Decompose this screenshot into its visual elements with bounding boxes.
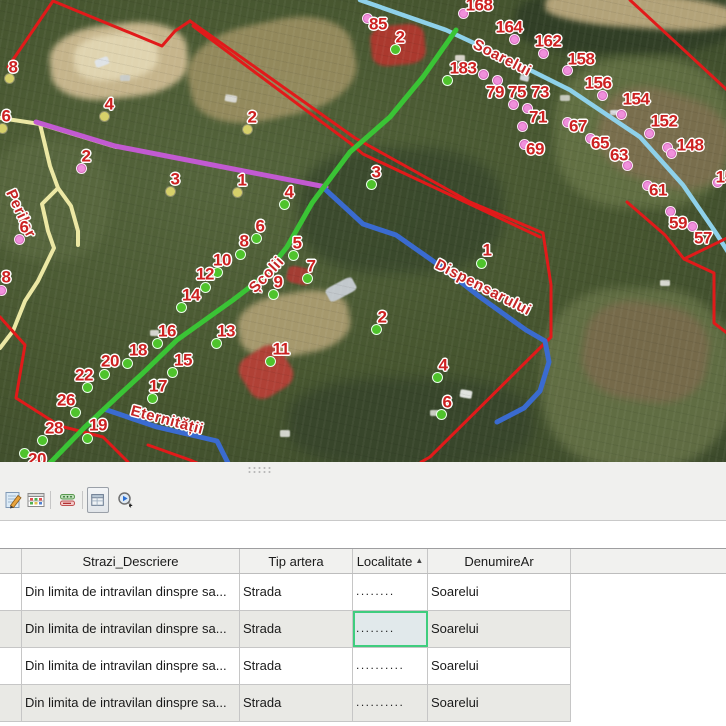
cell-denumire-artera[interactable]: Soarelui bbox=[428, 685, 571, 721]
cell-localitate[interactable]: ........ bbox=[353, 574, 428, 610]
header-localitate-label: Localitate bbox=[357, 554, 413, 569]
map-number-label: 2 bbox=[82, 148, 91, 165]
map-number-label: 1 bbox=[483, 242, 492, 259]
map-number-label: 22 bbox=[75, 367, 93, 384]
cell-tip-artera[interactable]: Strada bbox=[240, 685, 353, 721]
map-number-label: 57 bbox=[694, 230, 712, 247]
map-point-marker[interactable] bbox=[236, 250, 245, 259]
map-number-label: 6 bbox=[443, 394, 452, 411]
row-selector[interactable] bbox=[0, 685, 22, 721]
map-number-label: 3 bbox=[171, 171, 180, 188]
boundary-9[interactable] bbox=[0, 317, 128, 462]
map-number-label: 168 bbox=[466, 0, 493, 14]
map-number-label: 14 bbox=[182, 287, 200, 304]
map-number-label: 73 bbox=[531, 84, 549, 101]
map-number-label: 4 bbox=[285, 184, 294, 201]
map-number-label: 8 bbox=[2, 269, 11, 286]
map-number-label: 5 bbox=[293, 235, 302, 252]
table-row-selected[interactable]: Din limita de intravilan dinspre sa... S… bbox=[0, 611, 571, 648]
table-panel-header bbox=[0, 462, 726, 521]
row-selector[interactable] bbox=[0, 648, 22, 684]
map-number-label: 71 bbox=[529, 109, 547, 126]
map-number-label: 1 bbox=[238, 172, 247, 189]
cell-localitate-selected[interactable]: ........ bbox=[353, 611, 428, 647]
table-window-icon bbox=[90, 492, 106, 508]
map-number-label: 17 bbox=[149, 378, 167, 395]
map-viewport[interactable]: PerilorSoareluiȘcoliiDispensaruluiEterni… bbox=[0, 0, 726, 462]
map-number-label: 67 bbox=[569, 118, 587, 135]
map-number-label: 16 bbox=[158, 323, 176, 340]
map-point-marker[interactable] bbox=[518, 122, 527, 131]
map-point-marker[interactable] bbox=[201, 283, 210, 292]
cell-tip-artera[interactable]: Strada bbox=[240, 648, 353, 684]
edit-pencil-icon bbox=[5, 491, 23, 509]
map-number-label: 18 bbox=[129, 342, 147, 359]
map-number-label: 8 bbox=[9, 59, 18, 76]
route-lines-layer bbox=[0, 0, 726, 462]
attribute-table: Strazi_Descriere Tip artera Localitate ▲… bbox=[0, 548, 726, 722]
table-row[interactable]: Din limita de intravilan dinspre sa... S… bbox=[0, 685, 571, 722]
map-number-label: 183 bbox=[450, 60, 477, 77]
header-localitate[interactable]: Localitate ▲ bbox=[353, 549, 428, 573]
map-point-marker[interactable] bbox=[617, 110, 626, 119]
map-number-label: 4 bbox=[439, 357, 448, 374]
boundary-2[interactable] bbox=[53, 1, 190, 46]
map-point-marker[interactable] bbox=[477, 259, 486, 268]
map-number-label: 156 bbox=[585, 75, 612, 92]
map-number-label: 12 bbox=[196, 266, 214, 283]
header-strazi-descriere[interactable]: Strazi_Descriere bbox=[22, 549, 240, 573]
cell-strazi-descriere[interactable]: Din limita de intravilan dinspre sa... bbox=[22, 648, 240, 684]
boundary-6[interactable] bbox=[630, 0, 726, 89]
map-number-label: 164 bbox=[496, 19, 523, 36]
selection-rows-icon bbox=[59, 491, 77, 509]
map-number-label: 154 bbox=[623, 91, 650, 108]
map-number-label: 20 bbox=[101, 353, 119, 370]
header-row-selector[interactable] bbox=[0, 549, 22, 573]
map-number-label: 59 bbox=[669, 215, 687, 232]
map-point-marker[interactable] bbox=[123, 359, 132, 368]
header-filler bbox=[571, 549, 726, 573]
cell-strazi-descriere[interactable]: Din limita de intravilan dinspre sa... bbox=[22, 611, 240, 647]
table-row[interactable]: Din limita de intravilan dinspre sa... S… bbox=[0, 648, 571, 685]
map-number-label: 75 bbox=[508, 84, 526, 101]
sort-ascending-icon: ▲ bbox=[415, 556, 423, 565]
map-number-label: 10 bbox=[213, 252, 231, 269]
cell-denumire-artera[interactable]: Soarelui bbox=[428, 648, 571, 684]
toolbar-separator bbox=[50, 491, 51, 509]
switch-selection-button[interactable] bbox=[58, 490, 78, 510]
map-number-label: 20 bbox=[28, 451, 46, 463]
map-number-label: 158 bbox=[568, 51, 595, 68]
map-number-label: 4 bbox=[105, 96, 114, 113]
map-number-label: 79 bbox=[486, 84, 504, 101]
magnifier-icon bbox=[117, 491, 135, 509]
cell-strazi-descriere[interactable]: Din limita de intravilan dinspre sa... bbox=[22, 685, 240, 721]
boundary-10[interactable] bbox=[148, 445, 197, 462]
splitter-grip[interactable] bbox=[247, 466, 271, 474]
map-number-label: 2 bbox=[378, 309, 387, 326]
map-number-label: 6 bbox=[2, 108, 11, 125]
map-number-label: 19 bbox=[89, 417, 107, 434]
zoom-to-selected-button[interactable] bbox=[116, 490, 136, 510]
table-header-row: Strazi_Descriere Tip artera Localitate ▲… bbox=[0, 548, 726, 574]
map-point-marker[interactable] bbox=[0, 286, 6, 295]
map-number-label: 26 bbox=[57, 392, 75, 409]
cell-tip-artera[interactable]: Strada bbox=[240, 574, 353, 610]
map-number-label: 2 bbox=[248, 109, 257, 126]
map-number-label: 15 bbox=[174, 352, 192, 369]
row-selector[interactable] bbox=[0, 574, 22, 610]
map-number-label: 162 bbox=[535, 33, 562, 50]
street-artera-violet[interactable] bbox=[36, 122, 326, 187]
map-number-label: 8 bbox=[240, 233, 249, 250]
show-table-window-button[interactable] bbox=[87, 487, 109, 513]
map-number-label: 6 bbox=[20, 219, 29, 236]
map-number-label: 9 bbox=[274, 274, 283, 291]
map-number-label: 65 bbox=[591, 135, 609, 152]
map-number-label: 28 bbox=[45, 420, 63, 437]
map-number-label: 148 bbox=[677, 137, 704, 154]
cell-strazi-descriere[interactable]: Din limita de intravilan dinspre sa... bbox=[22, 574, 240, 610]
map-number-label: 7 bbox=[307, 258, 316, 275]
map-number-label: 6 bbox=[256, 218, 265, 235]
map-point-marker[interactable] bbox=[83, 434, 92, 443]
map-number-label: 63 bbox=[610, 147, 628, 164]
map-number-label: 13 bbox=[217, 323, 235, 340]
panel-spacer bbox=[0, 521, 726, 548]
header-tip-artera[interactable]: Tip artera bbox=[240, 549, 353, 573]
map-point-marker[interactable] bbox=[479, 70, 488, 79]
attribute-toolbar bbox=[0, 486, 726, 518]
cell-localitate[interactable]: .......... bbox=[353, 648, 428, 684]
open-attribute-table-button[interactable] bbox=[26, 490, 46, 510]
map-number-label: 2 bbox=[396, 29, 405, 46]
cell-localitate[interactable]: .......... bbox=[353, 685, 428, 721]
map-number-label: 152 bbox=[651, 113, 678, 130]
gis-application-window: PerilorSoareluiȘcoliiDispensaruluiEterni… bbox=[0, 0, 726, 726]
map-number-label: 85 bbox=[369, 16, 387, 33]
map-number-label: 3 bbox=[372, 164, 381, 181]
map-point-marker[interactable] bbox=[667, 149, 676, 158]
map-number-label: 11 bbox=[273, 341, 290, 358]
header-denumire-artera[interactable]: DenumireAr bbox=[428, 549, 571, 573]
table-row[interactable]: Din limita de intravilan dinspre sa... S… bbox=[0, 574, 571, 611]
attribute-table-icon bbox=[27, 491, 45, 509]
row-selector[interactable] bbox=[0, 611, 22, 647]
cell-denumire-artera[interactable]: Soarelui bbox=[428, 574, 571, 610]
map-point-marker[interactable] bbox=[100, 370, 109, 379]
map-number-label: 69 bbox=[526, 141, 544, 158]
cell-denumire-artera[interactable]: Soarelui bbox=[428, 611, 571, 647]
edit-attributes-button[interactable] bbox=[4, 490, 24, 510]
map-number-label: 61 bbox=[649, 182, 667, 199]
toolbar-separator bbox=[82, 491, 83, 509]
map-number-label: 150 bbox=[716, 169, 726, 186]
cell-tip-artera[interactable]: Strada bbox=[240, 611, 353, 647]
